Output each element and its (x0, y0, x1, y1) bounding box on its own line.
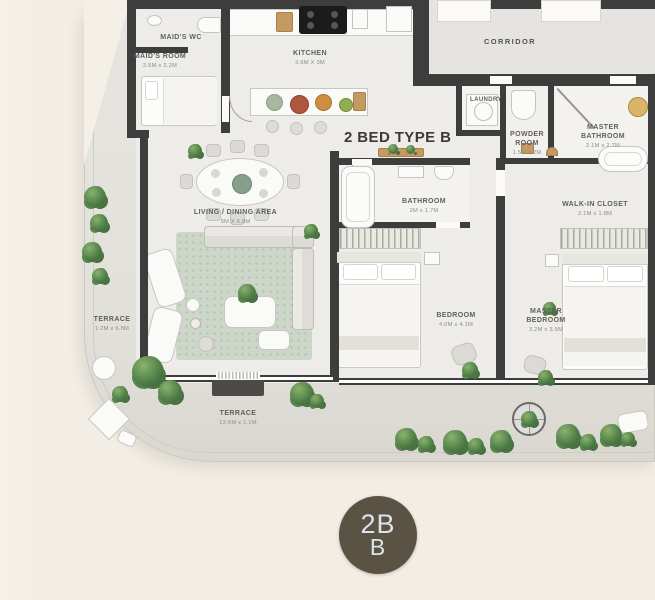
food-bowl (290, 95, 309, 114)
room-label-powder-room: POWDER ROOM 1.5M x 2M (500, 131, 554, 157)
wall (456, 86, 462, 134)
plant (188, 144, 202, 158)
room-name: BEDROOM (436, 312, 475, 319)
plant (490, 430, 512, 452)
plant (600, 424, 622, 446)
room-name: MAID'S ROOM (134, 53, 186, 60)
food-plate (315, 94, 332, 111)
door-opening (496, 170, 505, 196)
room-label-maids-room: MAID'S ROOM 2.5M x 2.2M (128, 53, 192, 70)
corridor-door (541, 0, 601, 22)
sofa (292, 248, 314, 330)
room-name: POWDER ROOM (510, 131, 544, 147)
headboard (562, 254, 648, 265)
room-dims: 1.5M x 2M (500, 150, 554, 157)
wall (330, 151, 339, 382)
door-opening (490, 76, 512, 84)
side-table (258, 330, 290, 350)
room-dims: 13.6M x 1.1M (205, 420, 271, 427)
room-name: CORRIDOR (484, 37, 536, 46)
pillow (343, 264, 378, 280)
room-name: WALK-IN CLOSET (562, 201, 628, 208)
dining-chair (287, 174, 300, 189)
plant (521, 411, 537, 427)
cutting-board (276, 12, 293, 32)
serving-tray (353, 92, 366, 111)
headboard (337, 252, 421, 263)
room-dims: 5M X 6.8M (178, 219, 293, 226)
bedroom-window-band (339, 378, 648, 385)
door-opening (222, 96, 229, 122)
plant (468, 438, 484, 454)
powder-toilet (511, 90, 536, 120)
room-label-master-bathroom: MASTER BATHROOM 2.1M x 2.7M (570, 124, 636, 150)
plant (84, 186, 106, 208)
plant (82, 242, 102, 262)
plant (112, 386, 128, 402)
room-dims: 2.1M x 1.8M (550, 211, 640, 218)
unit-badge-line2: B (370, 537, 386, 558)
bed-throw (339, 336, 419, 350)
room-dims: 3.6M X 3M (280, 60, 340, 67)
plant (158, 380, 182, 404)
room-dims: 1.2M x 6.8M (84, 326, 140, 333)
walk-in-closet-wardrobe (560, 228, 648, 249)
room-dims: 4.0M x 4.1M (425, 322, 487, 329)
plant (132, 356, 164, 388)
plant (462, 362, 478, 378)
room-label-terrace-side: TERRACE 1.2M x 6.8M (84, 316, 140, 333)
room-label-kitchen: KITCHEN 3.6M X 3M (280, 50, 340, 67)
room-label-bedroom: BEDROOM 4.0M x 4.1M (425, 312, 487, 329)
wc-sink (147, 15, 162, 26)
wall (648, 86, 655, 385)
room-label-terrace-bottom: TERRACE 13.6M x 1.1M (205, 410, 271, 427)
dining-table (196, 158, 284, 206)
room-name: MAID'S WC (160, 34, 201, 41)
hall-console (378, 148, 424, 157)
terrace-table-round (92, 356, 116, 380)
kitchen-appliance (352, 9, 368, 29)
food-plate (266, 94, 283, 111)
wc-toilet (197, 17, 221, 33)
room-name: TERRACE (94, 316, 131, 323)
plant (580, 434, 596, 450)
plant (90, 214, 108, 232)
corridor-door (437, 0, 491, 22)
room-name: BATHROOM (402, 198, 446, 205)
plant (538, 370, 553, 385)
pillow (145, 81, 158, 100)
unit-badge[interactable]: 2B B (339, 496, 417, 574)
room-name: LAUNDRY (470, 97, 502, 103)
pillow (568, 266, 604, 282)
plant (304, 224, 318, 238)
room-dims: 3.2M x 3.5M (516, 327, 576, 334)
bathtub (341, 166, 375, 228)
plant (406, 145, 415, 154)
plant (556, 424, 580, 448)
plan-title: 2 BED TYPE B (344, 129, 504, 146)
floor-lamp (190, 318, 201, 329)
plant (92, 268, 108, 284)
gold-basin (628, 97, 648, 117)
cooktop (299, 6, 347, 34)
room-label-walk-in-closet: WALK-IN CLOSET 2.1M x 1.8M (550, 201, 640, 218)
room-dims: 2M x 1.7M (390, 208, 458, 215)
wall (599, 0, 655, 9)
door-opening (436, 222, 460, 228)
room-name: LIVING / DINING AREA (194, 209, 277, 216)
plant (395, 428, 417, 450)
room-label-laundry: LAUNDRY (464, 97, 508, 105)
master-bath-tub (598, 146, 648, 172)
plant (310, 394, 324, 408)
wall (489, 0, 541, 9)
room-dims: 2.5M x 2.2M (128, 63, 192, 70)
wall (500, 158, 555, 164)
duvet (339, 284, 419, 366)
pouf (198, 336, 214, 352)
nightstand (424, 252, 440, 265)
plant (238, 284, 256, 302)
dining-chair (254, 144, 269, 157)
terrace-bench (212, 380, 264, 396)
dining-chair (206, 144, 221, 157)
duvet (564, 286, 646, 366)
room-name: TERRACE (220, 410, 257, 417)
wall (413, 0, 429, 86)
dining-chair (180, 174, 193, 189)
room-label-master-bedroom: MASTER BEDROOM 3.2M x 3.5M (516, 308, 576, 334)
plant (418, 436, 434, 452)
food-plate (339, 98, 353, 112)
room-dims: 2.1M x 2.7M (570, 143, 636, 150)
plant (621, 432, 635, 446)
stool (314, 121, 327, 134)
terrace-bench-slats (216, 372, 260, 379)
fridge (386, 6, 412, 32)
room-name: KITCHEN (293, 50, 327, 57)
pillow (607, 266, 643, 282)
stool (266, 120, 279, 133)
floor-plan-canvas: MAID'S WC MAID'S ROOM 2.5M x 2.2M KITCHE… (0, 0, 655, 600)
room-label-corridor: CORRIDOR (455, 37, 565, 46)
dining-chair (230, 140, 245, 153)
bathroom-vanity (398, 166, 424, 178)
wall (140, 130, 148, 382)
plant (443, 430, 467, 454)
bed-throw (564, 338, 646, 352)
room-name: MASTER BATHROOM (581, 124, 625, 140)
room-label-living-dining: LIVING / DINING AREA 5M X 6.8M (178, 209, 293, 226)
nightstand (545, 254, 559, 267)
bedroom-wardrobe (339, 228, 421, 249)
side-table-round (186, 298, 200, 312)
wall (127, 0, 420, 9)
room-label-bathroom: BATHROOM 2M x 1.7M (390, 198, 458, 215)
room-name: MASTER BEDROOM (526, 308, 565, 324)
stool (290, 122, 303, 135)
room-label-maids-wc: MAID'S WC (150, 34, 212, 43)
door-opening (610, 76, 636, 84)
pillow (381, 264, 416, 280)
